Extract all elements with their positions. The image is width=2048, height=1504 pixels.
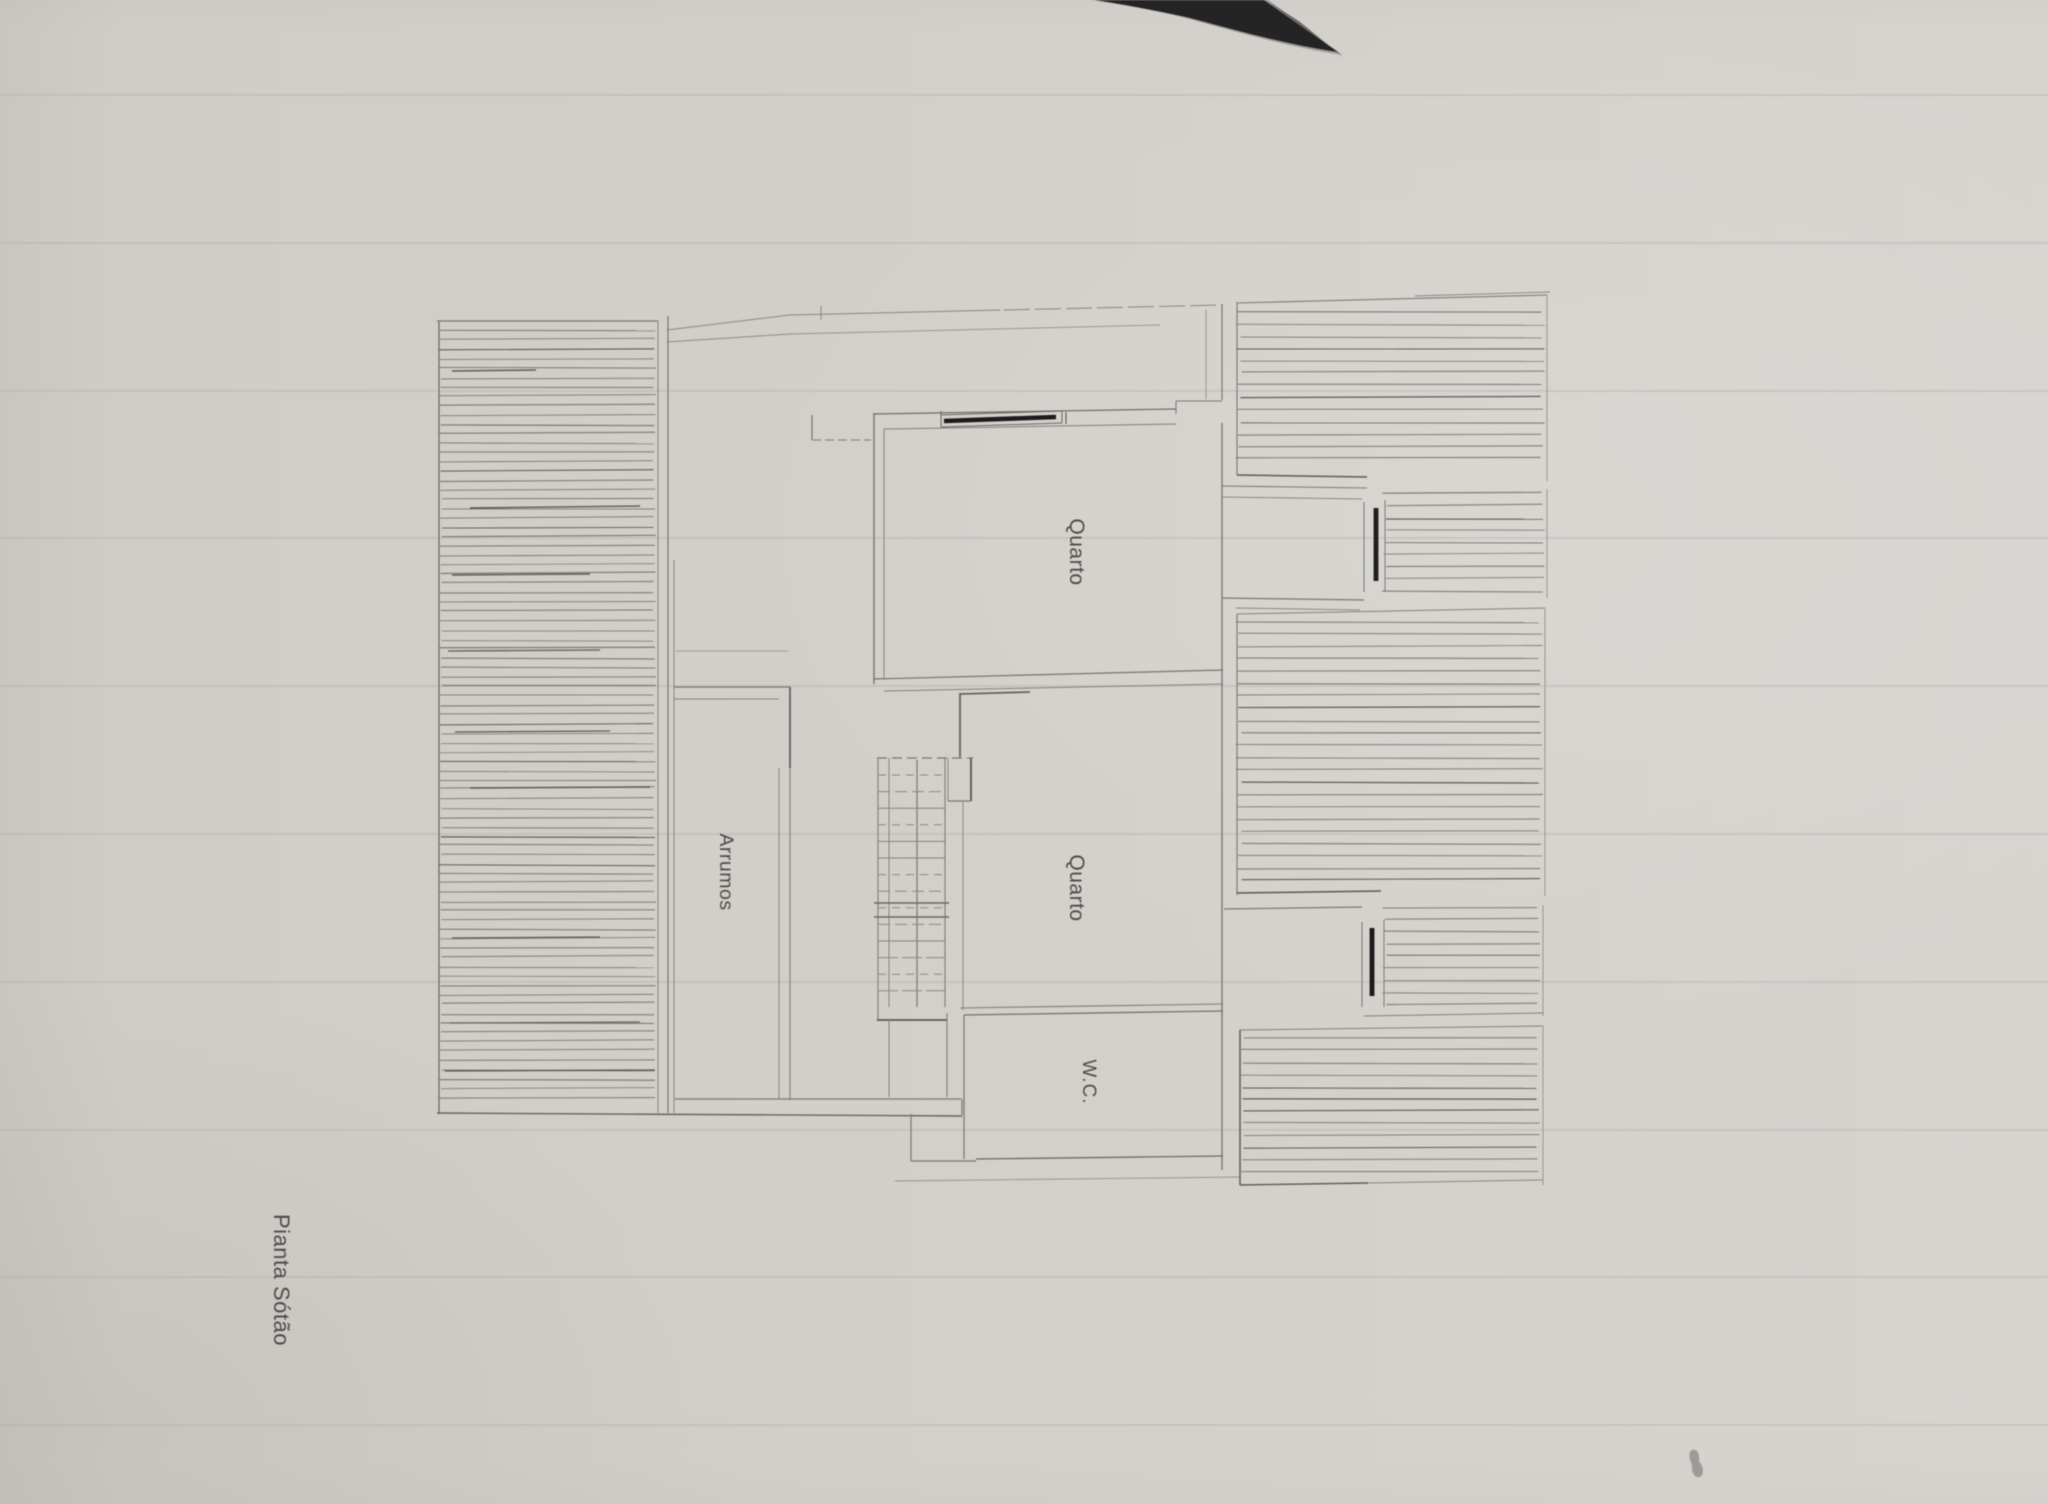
svg-text:Quarto: Quarto bbox=[1065, 854, 1088, 921]
svg-text:Arrumos: Arrumos bbox=[715, 833, 737, 910]
svg-text:Pianta Sótão: Pianta Sótão bbox=[269, 1214, 294, 1346]
svg-text:Quarto: Quarto bbox=[1065, 518, 1088, 585]
svg-text:W.C.: W.C. bbox=[1078, 1059, 1099, 1104]
